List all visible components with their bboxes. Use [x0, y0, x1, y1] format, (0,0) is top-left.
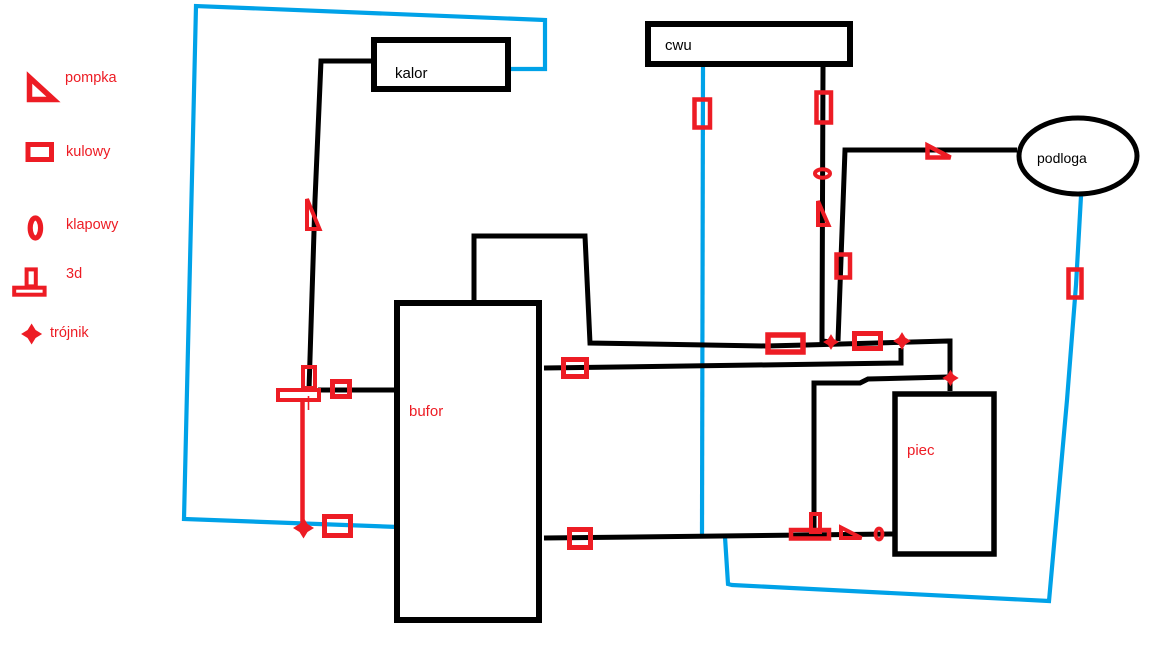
svg-text:cwu: cwu	[665, 37, 692, 54]
svg-text:bufor: bufor	[409, 403, 443, 420]
svg-text:3d: 3d	[66, 266, 82, 282]
svg-text:klapowy: klapowy	[66, 217, 119, 233]
svg-text:podloga: podloga	[1037, 150, 1087, 166]
svg-text:piec: piec	[907, 442, 935, 459]
svg-text:kulowy: kulowy	[66, 144, 111, 160]
svg-text:kalor: kalor	[395, 65, 428, 82]
svg-text:trójnik: trójnik	[50, 325, 89, 341]
svg-text:pompka: pompka	[65, 70, 118, 86]
